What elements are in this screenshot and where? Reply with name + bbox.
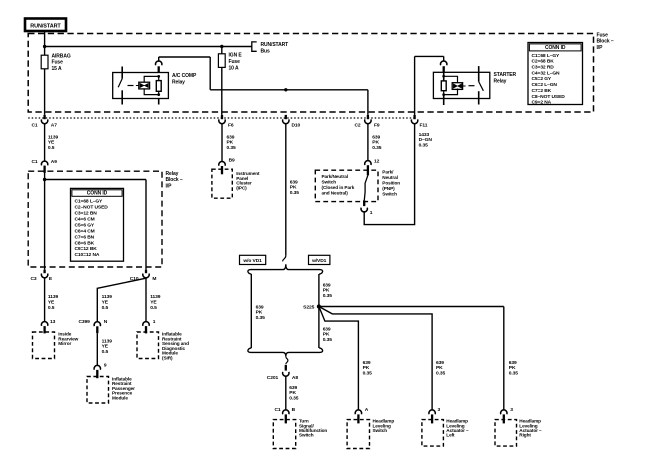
svg-text:B: B [292, 407, 296, 413]
svg-text:1139: 1139 [102, 338, 113, 344]
svg-text:YE: YE [48, 299, 55, 305]
svg-text:0.5: 0.5 [102, 349, 109, 355]
svg-text:(SIR): (SIR) [162, 355, 173, 360]
svg-text:A8: A8 [292, 375, 298, 381]
svg-text:Park/: Park/ [382, 170, 394, 175]
svg-text:1139: 1139 [48, 134, 59, 140]
svg-text:0.35: 0.35 [372, 145, 382, 151]
svg-text:Block –: Block – [166, 177, 183, 183]
svg-text:3: 3 [438, 407, 441, 413]
svg-text:0.35: 0.35 [323, 337, 333, 343]
svg-text:C4=32 L–GN: C4=32 L–GN [532, 70, 561, 76]
svg-text:M: M [152, 276, 156, 282]
svg-text:C1=68 L–GY: C1=68 L–GY [532, 53, 561, 59]
svg-text:PK: PK [289, 390, 296, 396]
svg-text:0.35: 0.35 [290, 190, 300, 196]
svg-text:Bus: Bus [261, 48, 270, 54]
svg-text:A: A [365, 407, 369, 413]
svg-text:PK: PK [436, 365, 443, 371]
svg-text:AIRBAG: AIRBAG [52, 53, 71, 59]
svg-text:639: 639 [363, 360, 371, 366]
svg-text:IGN E: IGN E [229, 53, 243, 59]
svg-text:639: 639 [372, 134, 380, 140]
svg-text:Block –: Block – [597, 39, 614, 45]
svg-text:C1: C1 [32, 122, 38, 128]
svg-text:PK: PK [509, 365, 516, 371]
svg-text:CONN ID: CONN ID [87, 190, 108, 196]
svg-text:PK: PK [256, 310, 263, 316]
svg-text:and Neutral): and Neutral) [322, 191, 349, 196]
svg-text:1139: 1139 [102, 294, 113, 300]
svg-text:C10=12 NA: C10=12 NA [75, 252, 100, 258]
svg-text:w/o VD1: w/o VD1 [242, 258, 262, 264]
svg-text:A7: A7 [51, 122, 57, 128]
svg-text:PK: PK [323, 288, 330, 294]
svg-text:9: 9 [104, 363, 107, 369]
svg-text:YE: YE [48, 140, 55, 146]
svg-text:3: 3 [510, 407, 513, 413]
svg-text:Relay: Relay [494, 78, 507, 84]
svg-text:F9: F9 [374, 122, 380, 128]
svg-text:(Closed in Park: (Closed in Park [322, 185, 355, 190]
svg-text:(IPC): (IPC) [236, 185, 247, 190]
svg-text:0.35: 0.35 [227, 145, 237, 151]
svg-text:C7=2 BK: C7=2 BK [532, 88, 552, 94]
svg-text:1: 1 [153, 319, 156, 325]
svg-text:C4=6 CM: C4=6 CM [75, 216, 95, 222]
svg-text:C1=68 L–GY: C1=68 L–GY [75, 199, 104, 205]
svg-text:639: 639 [323, 282, 331, 288]
svg-text:A/C COMP: A/C COMP [172, 73, 197, 79]
svg-text:F6: F6 [228, 122, 234, 128]
svg-text:PK: PK [372, 140, 379, 146]
svg-text:Mirror: Mirror [58, 341, 71, 346]
svg-text:A9: A9 [51, 159, 57, 165]
svg-text:15 A: 15 A [52, 66, 62, 72]
svg-text:Park/Neutral: Park/Neutral [322, 174, 349, 179]
svg-text:639: 639 [323, 326, 331, 332]
svg-text:C8=6 BK: C8=6 BK [75, 240, 95, 246]
svg-text:S225: S225 [303, 305, 314, 311]
svg-text:1139: 1139 [150, 294, 161, 300]
svg-text:0.5: 0.5 [150, 305, 157, 311]
svg-text:Neutral: Neutral [382, 175, 398, 180]
svg-text:C8–NOT USED: C8–NOT USED [532, 94, 566, 100]
svg-text:C6=2 L–GN: C6=2 L–GN [532, 82, 558, 88]
svg-text:0.35: 0.35 [289, 396, 299, 402]
svg-text:I/P: I/P [597, 45, 604, 51]
svg-text:0.35: 0.35 [256, 315, 266, 321]
svg-text:639: 639 [256, 304, 264, 310]
svg-text:C5=2 GY: C5=2 GY [532, 76, 552, 82]
svg-text:C2: C2 [355, 122, 361, 128]
svg-text:D10: D10 [292, 122, 301, 128]
svg-text:N: N [104, 319, 108, 325]
svg-text:C7=6 BN: C7=6 BN [75, 234, 95, 240]
svg-text:0.35: 0.35 [323, 293, 333, 299]
svg-text:Module: Module [112, 395, 128, 400]
svg-text:Right: Right [519, 433, 531, 438]
svg-text:C9=12 BK: C9=12 BK [75, 246, 98, 252]
svg-text:C5=6 GY: C5=6 GY [75, 222, 95, 228]
svg-text:Position: Position [382, 181, 400, 186]
svg-text:12: 12 [374, 158, 380, 164]
svg-text:0.35: 0.35 [509, 371, 519, 377]
svg-text:(PNP): (PNP) [382, 186, 395, 191]
svg-text:B9: B9 [229, 158, 235, 164]
svg-text:0.35: 0.35 [436, 371, 446, 377]
svg-text:1: 1 [370, 210, 373, 216]
svg-text:639: 639 [436, 360, 444, 366]
svg-text:C2–NOT USED: C2–NOT USED [75, 205, 109, 211]
svg-text:13: 13 [50, 319, 56, 325]
svg-text:w/VD1: w/VD1 [311, 258, 327, 264]
svg-text:1433: 1433 [419, 132, 430, 138]
svg-text:C3=12 BN: C3=12 BN [75, 211, 98, 217]
svg-text:C3: C3 [31, 276, 37, 282]
svg-text:RUN/START: RUN/START [261, 42, 289, 48]
svg-text:Switch: Switch [322, 180, 337, 185]
svg-text:Fuse: Fuse [52, 60, 64, 66]
svg-text:10 A: 10 A [229, 65, 239, 71]
svg-text:Relay: Relay [166, 171, 179, 177]
svg-text:I/P: I/P [166, 184, 173, 190]
svg-text:639: 639 [290, 179, 298, 185]
svg-text:YE: YE [102, 299, 109, 305]
svg-text:C399: C399 [79, 319, 91, 325]
svg-text:RUN/START: RUN/START [30, 23, 61, 29]
svg-text:YE: YE [102, 344, 109, 350]
svg-text:PK: PK [227, 140, 234, 146]
svg-text:Switch: Switch [299, 433, 314, 438]
svg-text:C1: C1 [275, 407, 281, 413]
svg-text:CONN ID: CONN ID [545, 45, 566, 51]
svg-text:F11: F11 [420, 122, 428, 128]
svg-text:PK: PK [290, 185, 297, 191]
svg-text:0.5: 0.5 [48, 145, 55, 151]
svg-text:1139: 1139 [48, 294, 59, 300]
svg-text:C3=32 RD: C3=32 RD [532, 65, 555, 71]
svg-text:Switch: Switch [382, 192, 397, 197]
svg-text:0.35: 0.35 [363, 371, 373, 377]
svg-text:C9=2 NA: C9=2 NA [532, 100, 552, 106]
svg-text:Switch: Switch [373, 428, 388, 433]
svg-text:Fuse: Fuse [229, 59, 241, 65]
svg-text:C6=4 CM: C6=4 CM [75, 228, 95, 234]
svg-text:639: 639 [509, 360, 517, 366]
svg-text:639: 639 [289, 385, 297, 391]
svg-text:0.35: 0.35 [419, 143, 429, 149]
svg-text:C201: C201 [267, 375, 279, 381]
svg-text:YE: YE [150, 299, 157, 305]
svg-text:D–GN: D–GN [419, 137, 433, 143]
svg-text:0.5: 0.5 [102, 305, 109, 311]
svg-text:C2=68 BK: C2=68 BK [532, 59, 555, 65]
svg-text:0.5: 0.5 [48, 305, 55, 311]
svg-text:C1: C1 [32, 159, 38, 165]
svg-text:PK: PK [323, 332, 330, 338]
svg-text:Fuse: Fuse [597, 32, 609, 38]
svg-text:PK: PK [363, 365, 370, 371]
svg-text:Relay: Relay [172, 79, 185, 85]
svg-text:STARTER: STARTER [494, 72, 517, 78]
svg-text:639: 639 [227, 134, 235, 140]
svg-text:Left: Left [446, 433, 455, 438]
